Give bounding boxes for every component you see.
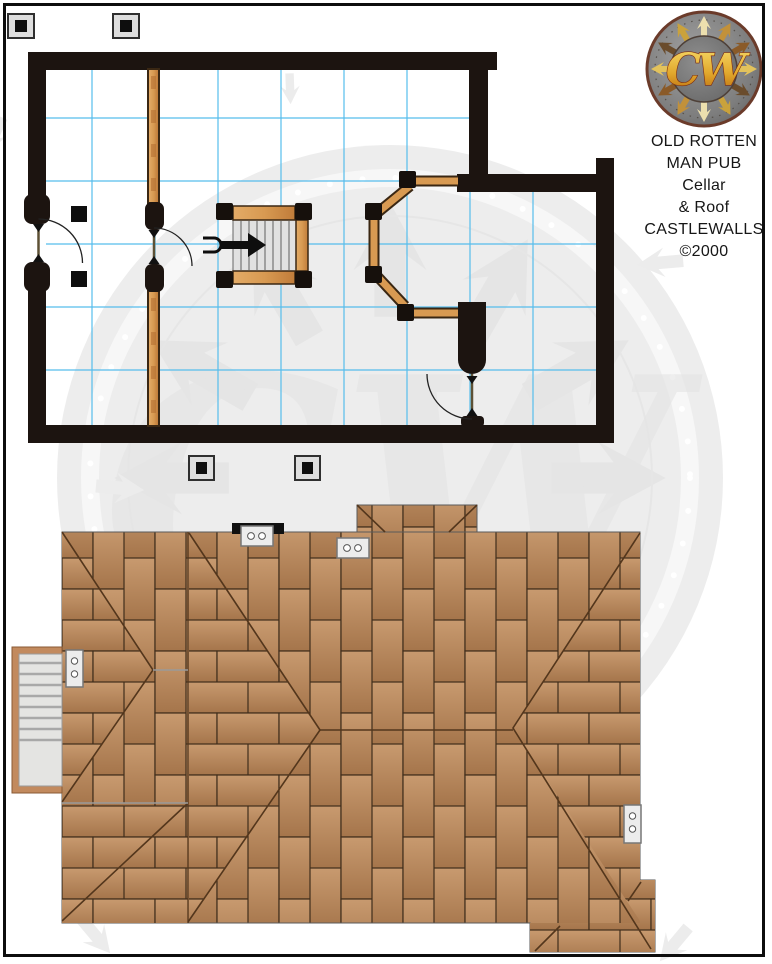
pillar-marker-bottom-1 <box>189 456 214 480</box>
roof-vent-1 <box>241 526 273 546</box>
title-line-5: CASTLEWALLS <box>632 219 772 241</box>
copyright-line: ©2000 <box>632 241 772 263</box>
pillar-interior-1 <box>71 206 87 222</box>
map-page: CW <box>0 0 772 964</box>
title-line-3: Cellar <box>632 175 772 197</box>
castlewalls-logo: CW <box>647 12 761 126</box>
roof-vent-2 <box>337 538 369 558</box>
roof-plan <box>12 505 655 952</box>
logo-monogram: CW <box>666 45 751 96</box>
title-line-2: MAN PUB <box>632 153 772 175</box>
pillar-interior-2 <box>71 271 87 287</box>
title-line-1: OLD ROTTEN <box>632 131 772 153</box>
title-line-4: & Roof <box>632 197 772 219</box>
pillar-marker-bottom-2 <box>295 456 320 480</box>
title-block: OLD ROTTEN MAN PUB Cellar & Roof CASTLEW… <box>632 131 772 263</box>
roof-vent-4 <box>624 805 641 843</box>
pillar-marker-top-1 <box>8 14 34 38</box>
left-door <box>33 219 83 263</box>
external-staircase <box>12 647 62 793</box>
pillar-marker-top-2 <box>113 14 139 38</box>
roof-vent-3 <box>66 650 83 687</box>
